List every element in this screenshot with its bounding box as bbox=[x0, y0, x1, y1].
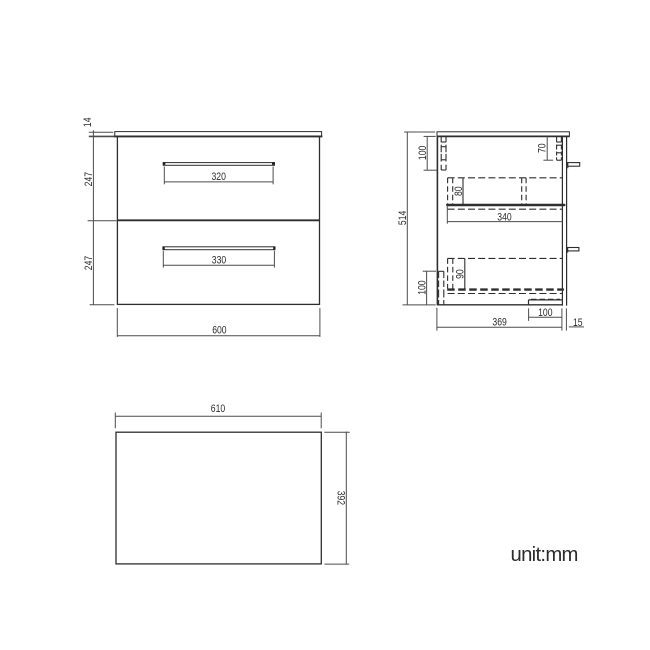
svg-text:80: 80 bbox=[453, 186, 465, 196]
svg-text:100: 100 bbox=[416, 280, 428, 295]
svg-text:247: 247 bbox=[83, 172, 95, 186]
svg-text:610: 610 bbox=[211, 403, 226, 415]
svg-text:330: 330 bbox=[212, 254, 227, 266]
svg-text:600: 600 bbox=[212, 325, 227, 337]
svg-text:320: 320 bbox=[212, 171, 227, 183]
svg-text:100: 100 bbox=[538, 307, 553, 319]
svg-text:14: 14 bbox=[82, 117, 94, 127]
svg-text:90: 90 bbox=[455, 269, 467, 279]
svg-text:392: 392 bbox=[334, 491, 346, 505]
svg-text:100: 100 bbox=[417, 145, 429, 160]
svg-text:369: 369 bbox=[492, 317, 506, 329]
svg-text:247: 247 bbox=[83, 256, 95, 270]
svg-text:340: 340 bbox=[497, 211, 512, 223]
svg-text:514: 514 bbox=[397, 210, 409, 225]
svg-text:15: 15 bbox=[573, 317, 583, 329]
svg-text:unit:mm: unit:mm bbox=[511, 544, 578, 566]
svg-text:70: 70 bbox=[537, 143, 549, 153]
